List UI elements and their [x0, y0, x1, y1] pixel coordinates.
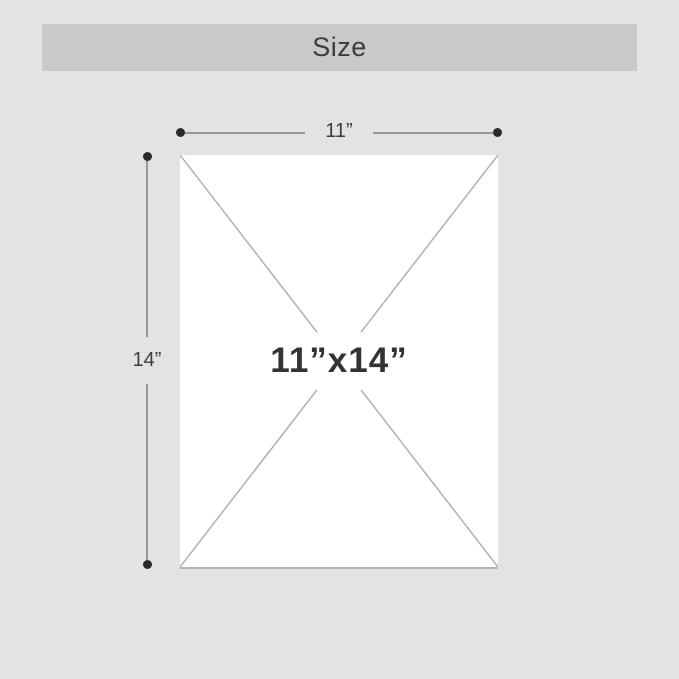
width-dimension: 11” — [176, 127, 502, 138]
dimension-endpoint-dot — [143, 152, 152, 161]
size-label: 11”x14” — [270, 341, 407, 381]
dimension-line-segment — [146, 384, 148, 560]
dimension-line-segment — [373, 132, 493, 134]
dimension-endpoint-dot — [143, 560, 152, 569]
header-bar: Size — [42, 24, 637, 71]
height-label: 14” — [133, 337, 162, 384]
dimension-line-segment — [185, 132, 305, 134]
paper-sheet: 11”x14” — [180, 155, 498, 569]
dimension-endpoint-dot — [176, 128, 185, 137]
width-label: 11” — [305, 120, 372, 143]
dimension-endpoint-dot — [493, 128, 502, 137]
dimension-line-segment — [146, 161, 148, 337]
size-guide-diagram: Size 11” 14” 11”x14” — [0, 0, 679, 679]
page-title: Size — [312, 32, 367, 63]
height-dimension: 14” — [125, 152, 169, 569]
